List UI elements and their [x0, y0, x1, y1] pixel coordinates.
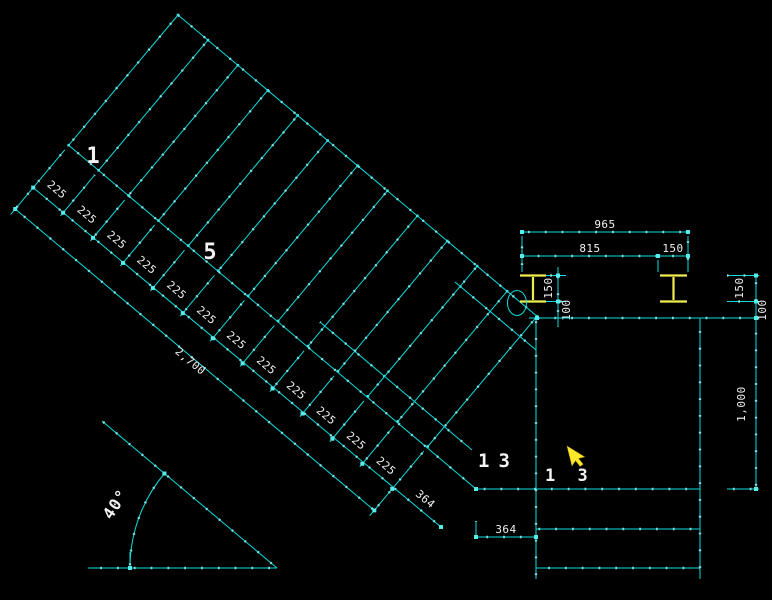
grip-square	[67, 144, 70, 147]
grip-square	[121, 261, 125, 265]
stair-tread-line	[129, 65, 238, 195]
grip-square	[506, 290, 509, 293]
grip-square	[372, 508, 376, 512]
beam-detail: 965 815 150 150 100	[476, 218, 769, 579]
tread-depth-label: 225	[194, 304, 219, 328]
grip-square	[266, 89, 269, 92]
connection-detail-circle	[508, 291, 527, 316]
grip-square	[556, 300, 560, 304]
grip-square	[754, 316, 758, 320]
grip-square	[271, 386, 275, 390]
grip-square	[277, 320, 280, 323]
grip-square	[656, 254, 660, 258]
grip-square	[128, 566, 132, 570]
grip-square	[330, 437, 334, 441]
landing-outline	[476, 318, 758, 579]
grip-square	[91, 236, 95, 240]
grip-square	[520, 230, 524, 234]
beam-150-label: 150	[542, 277, 555, 298]
angle-arc	[130, 474, 164, 569]
grip-square	[754, 274, 758, 278]
grip-square	[390, 487, 394, 491]
grip-square	[187, 244, 190, 247]
total-run-label: 2,700	[172, 345, 208, 378]
tread-number-13: 13	[478, 450, 519, 472]
grip-square	[307, 345, 310, 348]
grip-square	[367, 395, 370, 398]
grip-square	[207, 39, 210, 42]
grip-square	[181, 311, 185, 315]
cad-pointer-cursor-icon	[567, 442, 587, 468]
offset-364-label: 364	[495, 523, 516, 536]
grip-square	[556, 274, 560, 278]
dim-150-label: 150	[662, 242, 683, 255]
grip-square	[296, 114, 299, 117]
tread-depth-label: 225	[104, 228, 129, 252]
tread-depth-label: 225	[74, 203, 99, 227]
right-150-label: 150	[733, 277, 746, 298]
grip-square	[61, 211, 65, 215]
grip-square	[426, 445, 429, 448]
right-dimension-chain: 150 100 1,000	[727, 276, 769, 490]
grip-square	[237, 64, 240, 67]
stair-tread-line	[278, 191, 387, 321]
stair-tread-line	[188, 115, 297, 245]
grip-square	[97, 169, 100, 172]
angle-annotation: 40°	[88, 421, 277, 568]
grip-square	[535, 316, 539, 320]
grip-square	[686, 230, 690, 234]
stair-tread-line	[308, 216, 417, 346]
endpoint-grips	[13, 14, 758, 570]
grip-square	[474, 487, 478, 491]
grip-square	[754, 300, 758, 304]
tread-number-13-copy: 1 3	[545, 466, 594, 486]
stair-bottom-stringer-inner	[320, 322, 472, 450]
grip-square	[211, 336, 215, 340]
landing-offset-dim: 364	[476, 521, 536, 537]
cad-drawing: 225225225225225225225225225225225225 2,7…	[0, 0, 772, 600]
tread-number-5: 5	[203, 240, 216, 265]
tread-number-1: 1	[86, 144, 99, 169]
grip-square	[31, 186, 35, 190]
grip-square	[754, 487, 758, 491]
grip-square	[476, 265, 479, 268]
stair-dimension-chain: 225225225225225225225225225225225225 2,7…	[11, 150, 441, 527]
stair-tread-line	[218, 141, 327, 271]
grip-square	[151, 286, 155, 290]
grip-square	[360, 462, 364, 466]
end-segment-label: 364	[413, 487, 438, 511]
stair-treads	[69, 15, 537, 446]
i-beam-right	[660, 276, 687, 302]
cad-drawing-canvas[interactable]: 225225225225225225225225225225225225 2,7…	[0, 0, 772, 600]
grip-square	[13, 207, 17, 211]
grip-square	[534, 535, 538, 539]
grip-square	[386, 189, 389, 192]
grip-square	[241, 361, 245, 365]
tread-depth-label: 225	[44, 178, 69, 202]
grip-square	[217, 269, 220, 272]
grip-square	[474, 535, 478, 539]
stair-tread-line	[99, 40, 208, 170]
grip-square	[446, 240, 449, 243]
stair-tread-line	[69, 15, 178, 145]
stair-tread-line	[368, 266, 477, 396]
grip-square	[397, 420, 400, 423]
grip-square	[416, 215, 419, 218]
stair-tread-line	[398, 291, 507, 421]
stair-plan	[69, 15, 537, 489]
grip-square	[127, 194, 130, 197]
grip-square	[326, 139, 329, 142]
angle-label: 40°	[99, 485, 132, 522]
grip-square	[177, 14, 180, 17]
grip-square	[439, 525, 443, 529]
dim-965-label: 965	[594, 218, 615, 231]
grip-square	[157, 219, 160, 222]
grip-square	[247, 295, 250, 298]
grip-square	[520, 254, 524, 258]
grip-square	[686, 254, 690, 258]
dim-815-label: 815	[579, 242, 600, 255]
grip-square	[356, 164, 359, 167]
grip-square	[162, 472, 166, 476]
line-node-dots	[130, 474, 164, 569]
tread-depth-label: 225	[164, 278, 189, 302]
grip-square	[337, 370, 340, 373]
beam-100-label: 100	[560, 299, 573, 320]
grip-square	[300, 412, 304, 416]
right-1000-label: 1,000	[735, 386, 748, 422]
